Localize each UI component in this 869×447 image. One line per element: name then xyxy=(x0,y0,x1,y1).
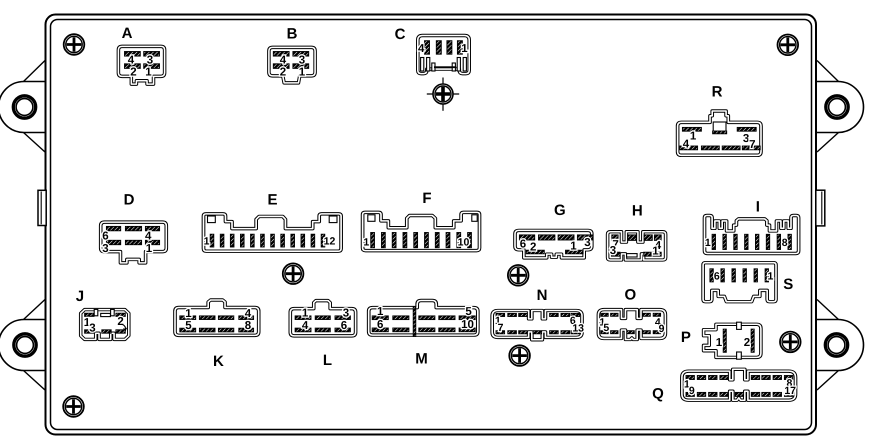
svg-text:4: 4 xyxy=(418,43,425,55)
svg-text:4: 4 xyxy=(145,231,152,243)
svg-text:4: 4 xyxy=(280,55,287,67)
svg-text:5: 5 xyxy=(465,306,472,318)
svg-text:1: 1 xyxy=(570,241,577,253)
svg-text:3: 3 xyxy=(102,243,108,255)
svg-text:M: M xyxy=(415,350,428,367)
svg-text:S: S xyxy=(783,276,793,293)
svg-text:1: 1 xyxy=(716,337,723,349)
svg-text:6: 6 xyxy=(102,231,108,243)
svg-text:L: L xyxy=(323,352,332,369)
svg-text:10: 10 xyxy=(461,319,474,331)
svg-text:8: 8 xyxy=(782,237,788,249)
svg-text:3: 3 xyxy=(147,54,153,66)
svg-text:4: 4 xyxy=(128,54,135,66)
svg-text:B: B xyxy=(287,25,298,42)
svg-text:C: C xyxy=(395,26,406,43)
svg-text:1: 1 xyxy=(363,236,369,248)
svg-text:R: R xyxy=(712,84,723,101)
svg-text:1: 1 xyxy=(302,307,309,319)
svg-text:2: 2 xyxy=(744,337,750,349)
svg-text:1: 1 xyxy=(377,306,384,318)
svg-text:3: 3 xyxy=(299,55,305,67)
svg-text:9: 9 xyxy=(689,385,695,397)
svg-text:O: O xyxy=(624,287,636,304)
svg-text:3: 3 xyxy=(584,237,590,249)
svg-text:2: 2 xyxy=(117,316,123,328)
svg-text:4: 4 xyxy=(245,308,252,320)
svg-text:Q: Q xyxy=(652,385,664,402)
svg-text:G: G xyxy=(554,202,566,219)
svg-text:1: 1 xyxy=(461,43,468,55)
svg-text:E: E xyxy=(267,192,277,209)
svg-text:1: 1 xyxy=(705,237,711,249)
svg-text:N: N xyxy=(537,287,548,304)
svg-text:I: I xyxy=(756,198,760,215)
svg-text:1: 1 xyxy=(690,131,697,143)
svg-text:5: 5 xyxy=(185,320,192,332)
svg-text:D: D xyxy=(124,192,135,209)
svg-text:A: A xyxy=(122,25,133,42)
svg-text:P: P xyxy=(681,329,691,346)
svg-text:1: 1 xyxy=(185,308,192,320)
svg-text:17: 17 xyxy=(784,385,796,397)
svg-text:1: 1 xyxy=(204,236,210,248)
svg-text:1: 1 xyxy=(146,243,153,255)
svg-text:6: 6 xyxy=(341,320,347,332)
svg-text:5: 5 xyxy=(603,322,609,334)
svg-text:6: 6 xyxy=(377,319,383,331)
svg-text:7: 7 xyxy=(498,322,504,334)
svg-text:6: 6 xyxy=(714,270,720,282)
svg-text:6: 6 xyxy=(520,239,526,251)
svg-text:7: 7 xyxy=(749,139,755,151)
svg-text:H: H xyxy=(632,202,643,219)
svg-text:8: 8 xyxy=(245,320,252,332)
svg-text:2: 2 xyxy=(280,66,286,78)
svg-text:1: 1 xyxy=(767,270,773,282)
svg-text:1: 1 xyxy=(299,66,306,78)
svg-text:2: 2 xyxy=(130,66,136,78)
svg-text:12: 12 xyxy=(324,236,336,248)
svg-text:10: 10 xyxy=(458,236,470,248)
svg-text:9: 9 xyxy=(659,323,665,335)
svg-text:J: J xyxy=(76,288,84,305)
svg-text:1: 1 xyxy=(145,66,152,78)
svg-text:3: 3 xyxy=(610,245,616,257)
svg-text:F: F xyxy=(422,190,431,207)
svg-text:1: 1 xyxy=(652,246,659,258)
svg-text:13: 13 xyxy=(572,323,584,335)
svg-text:3: 3 xyxy=(343,307,349,319)
svg-text:2: 2 xyxy=(530,241,536,253)
svg-text:4: 4 xyxy=(683,139,690,151)
svg-text:K: K xyxy=(213,353,224,370)
svg-text:4: 4 xyxy=(302,320,309,332)
svg-text:3: 3 xyxy=(89,322,95,334)
